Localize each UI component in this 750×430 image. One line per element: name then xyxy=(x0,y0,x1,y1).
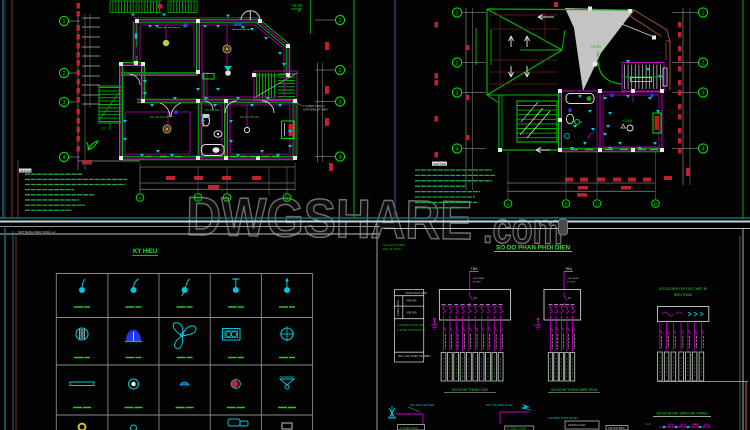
svg-text:DAY DAN CAP DIEN: DAY DAN CAP DIEN xyxy=(410,403,434,407)
svg-text:TBA: TBA xyxy=(565,267,572,271)
svg-text:CAP NGAM: CAP NGAM xyxy=(473,277,485,280)
svg-text:HOP DAU DAY: HOP DAU DAY xyxy=(568,423,586,427)
svg-text:GHI CHU: GHI CHU xyxy=(20,169,33,173)
svg-text:4: 4 xyxy=(339,155,342,161)
svg-text:KY HIEU: KY HIEU xyxy=(133,249,157,255)
svg-text:2: 2 xyxy=(456,61,459,67)
svg-text:3P 380V: 3P 380V xyxy=(473,282,482,284)
svg-text:CHIEU SANG: CHIEU SANG xyxy=(396,300,400,316)
svg-text:3: 3 xyxy=(456,91,459,97)
svg-text:SO DO HE THONG 220V: SO DO HE THONG 220V xyxy=(452,388,489,392)
svg-text:TU DIEN CHINH: TU DIEN CHINH xyxy=(507,427,526,430)
svg-text:CAP NGAM: CAP NGAM xyxy=(567,277,579,280)
svg-text:1: 1 xyxy=(63,19,66,25)
svg-text:1: 1 xyxy=(339,18,342,24)
svg-text:2: 2 xyxy=(63,71,66,77)
svg-text:CONG SUAT DIEN: CONG SUAT DIEN xyxy=(405,291,427,295)
svg-text:3: 3 xyxy=(702,91,705,97)
svg-text:ATM 30A: ATM 30A xyxy=(406,311,417,315)
svg-text:4: 4 xyxy=(456,147,459,153)
svg-text:1: 1 xyxy=(702,11,705,17)
svg-text:MAT BANG DIEN TANG 1-2: MAT BANG DIEN TANG 1-2 xyxy=(18,230,56,234)
svg-text:A: A xyxy=(138,196,141,201)
svg-text:B: B xyxy=(196,196,199,201)
svg-text:SO DO DIEN YEU CAC THIET BI: SO DO DIEN YEU CAC THIET BI xyxy=(659,287,707,291)
svg-text:GHI CHU: GHI CHU xyxy=(434,162,447,166)
svg-text:3P 380V: 3P 380V xyxy=(567,282,576,284)
svg-text:4: 4 xyxy=(63,155,66,161)
svg-text:3: 3 xyxy=(339,100,342,106)
svg-text:TBA: TBA xyxy=(471,267,478,271)
svg-text:A: A xyxy=(506,202,509,207)
svg-text:B: B xyxy=(564,202,567,207)
svg-text:SO DO PHAN PHOI DIEN: SO DO PHAN PHOI DIEN xyxy=(496,246,570,252)
svg-text:+0.00: +0.00 xyxy=(291,3,303,8)
svg-text:DAY CAP DIEN NGAM: DAY CAP DIEN NGAM xyxy=(486,403,513,407)
svg-text:1: 1 xyxy=(456,11,459,17)
svg-text:DIEN THOAI: DIEN THOAI xyxy=(674,293,692,297)
svg-text:1. DAY DIEN DI TRONG ONG: 1. DAY DIEN DI TRONG ONG xyxy=(397,323,423,327)
svg-text:AT: AT xyxy=(568,296,572,300)
svg-text:GHI CHU THIET KE DIEN: GHI CHU THIET KE DIEN xyxy=(398,354,431,358)
svg-text:CAP DIEN 3P-380V: CAP DIEN 3P-380V xyxy=(303,108,328,112)
svg-text:3: 3 xyxy=(63,100,66,106)
svg-text:AT: AT xyxy=(474,296,478,300)
svg-text:2: 2 xyxy=(339,68,342,74)
svg-text:TU DIEN TANG: TU DIEN TANG xyxy=(400,426,418,430)
svg-text:ATM 40A: ATM 40A xyxy=(406,299,417,303)
svg-text:2: 2 xyxy=(702,61,705,67)
svg-text:SO DO HE THONG DIEN TRGA: SO DO HE THONG DIEN TRGA xyxy=(551,388,598,392)
svg-text:+3.60: +3.60 xyxy=(622,118,633,123)
svg-text:CAP DIEN THOAI NOI BO: CAP DIEN THOAI NOI BO xyxy=(548,417,578,420)
svg-text:PL-B: PL-B xyxy=(693,422,699,426)
svg-text:GHI CHU KT DIEN: GHI CHU KT DIEN xyxy=(383,243,405,247)
svg-text:+6.60: +6.60 xyxy=(590,44,602,49)
svg-text:BAN VE SO 04: BAN VE SO 04 xyxy=(383,247,401,251)
svg-text:SO DO DI DAY DIEN CAP THANG: SO DO DI DAY DIEN CAP THANG xyxy=(656,412,707,416)
svg-text:4: 4 xyxy=(702,147,705,153)
svg-text:PL-B: PL-B xyxy=(645,422,651,426)
svg-text:2. TIET DIEN - DAY DONG BOC PV: 2. TIET DIEN - DAY DONG BOC PVC xyxy=(397,328,425,332)
